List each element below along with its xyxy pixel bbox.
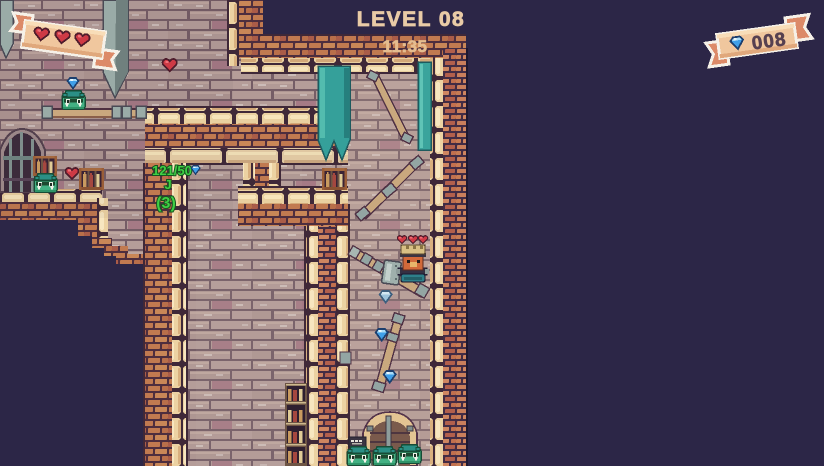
svg-text:121/50: 121/50 <box>152 163 192 178</box>
svg-text:(3): (3) <box>156 195 176 212</box>
svg-text:LEVEL 08: LEVEL 08 <box>357 8 466 31</box>
svg-text:11:35: 11:35 <box>382 37 427 56</box>
svg-text:J: J <box>164 177 171 192</box>
